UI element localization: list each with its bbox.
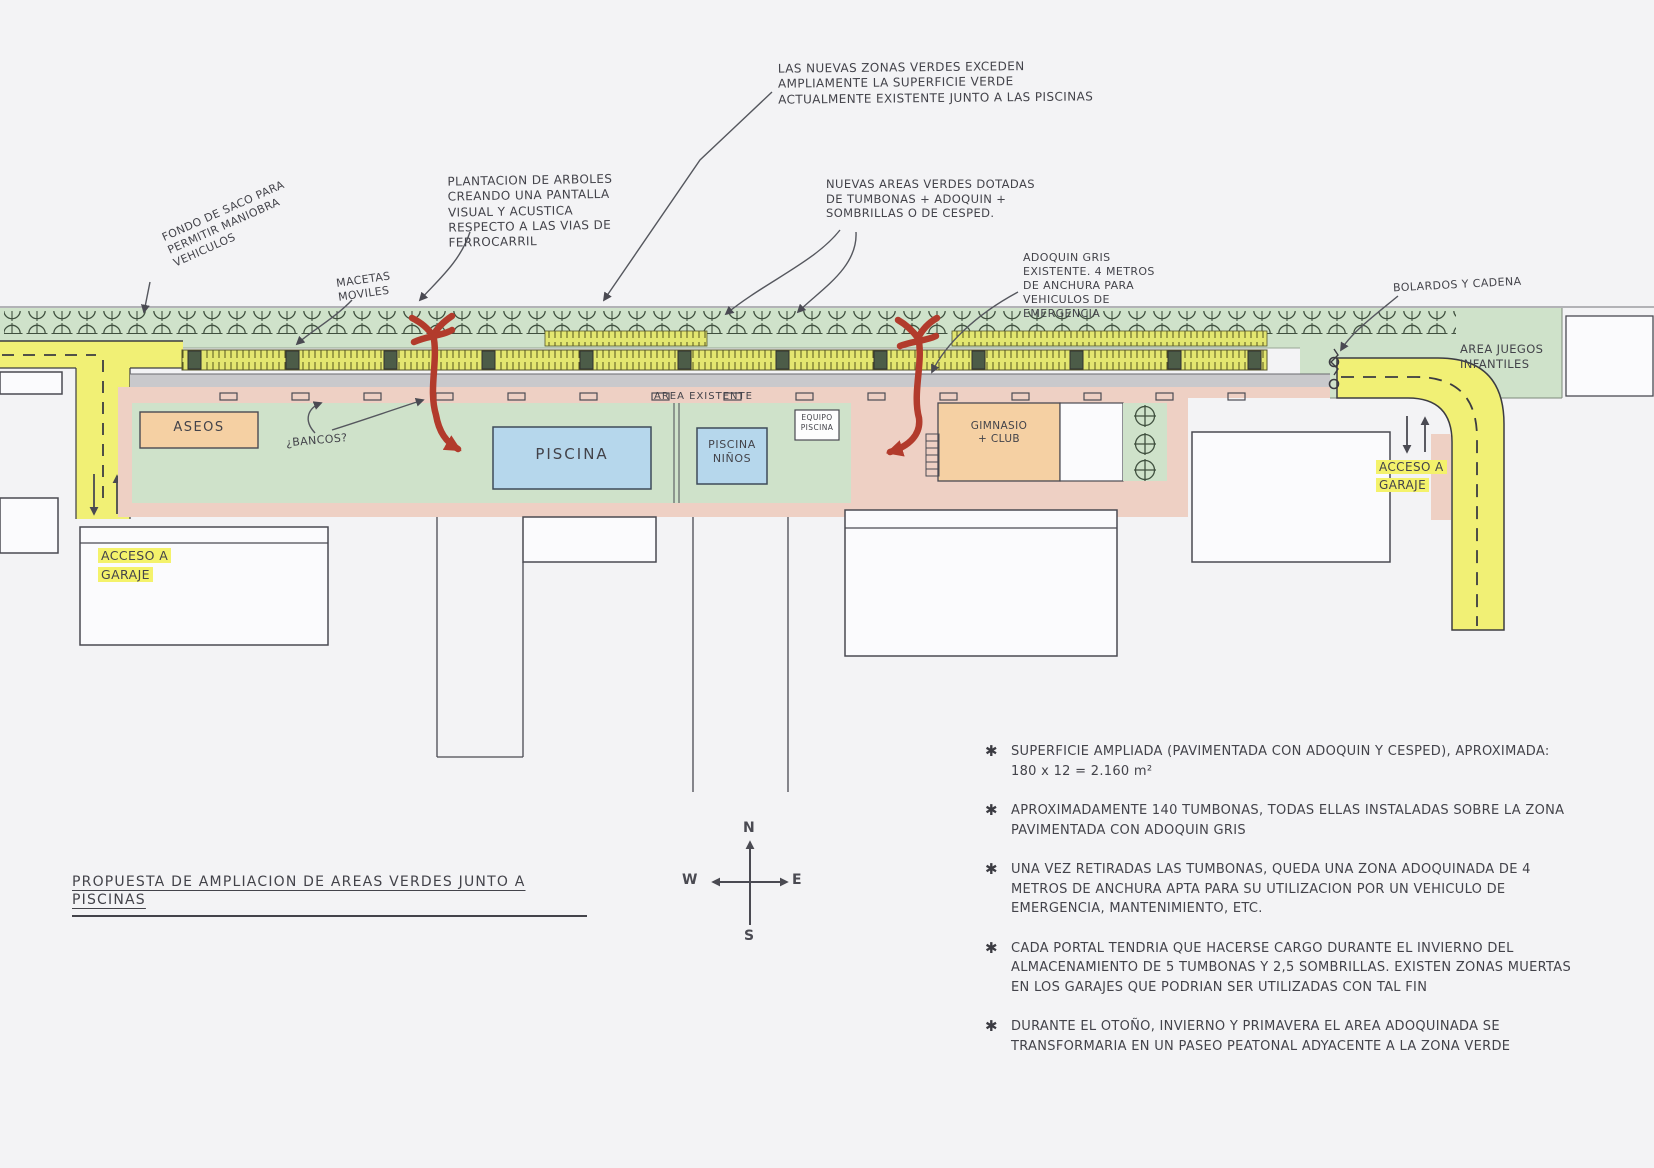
scanned-site-plan-page: LAS NUEVAS ZONAS VERDES EXCEDEN AMPLIAME… bbox=[0, 0, 1654, 1168]
label-existing-area: AREA EXISTENTE bbox=[654, 391, 784, 404]
label-acceso-garaje-left: ACCESO A GARAJE bbox=[98, 547, 210, 585]
compass-rose bbox=[713, 842, 787, 925]
gray-paving-strip bbox=[130, 374, 1330, 387]
note-item: ✱ APROXIMADAMENTE 140 TUMBONAS, TODAS EL… bbox=[985, 801, 1585, 840]
label-gimnasio-club: GIMNASIO + CLUB bbox=[967, 420, 1031, 447]
highlighted-text: ACCESO A GARAJE bbox=[1376, 460, 1447, 492]
note-item: ✱ DURANTE EL OTOÑO, INVIERNO Y PRIMAVERA… bbox=[985, 1017, 1585, 1056]
note-text: DURANTE EL OTOÑO, INVIERNO Y PRIMAVERA E… bbox=[1011, 1017, 1571, 1056]
asterisk-bullet-icon: ✱ bbox=[985, 939, 1011, 998]
asterisk-bullet-icon: ✱ bbox=[985, 801, 1011, 840]
annotation-new-green-zones: LAS NUEVAS ZONAS VERDES EXCEDEN AMPLIAME… bbox=[778, 58, 1100, 107]
page-title: PROPUESTA DE AMPLIACION DE AREAS VERDES … bbox=[72, 874, 587, 917]
note-item: ✱ CADA PORTAL TENDRIA QUE HACERSE CARGO … bbox=[985, 939, 1585, 998]
compass-north-label: N bbox=[743, 820, 755, 838]
note-text: CADA PORTAL TENDRIA QUE HACERSE CARGO DU… bbox=[1011, 939, 1571, 998]
asterisk-bullet-icon: ✱ bbox=[985, 860, 1011, 919]
label-acceso-garaje-right: ACCESO A GARAJE bbox=[1376, 458, 1468, 494]
compass-south-label: S bbox=[744, 928, 754, 946]
annotation-tree-planting: PLANTACION DE ARBOLES CREANDO UNA PANTAL… bbox=[447, 171, 633, 251]
label-aseos: ASEOS bbox=[140, 420, 258, 437]
note-item: ✱ UNA VEZ RETIRADAS LAS TUMBONAS, QUEDA … bbox=[985, 860, 1585, 919]
tree-row-icon bbox=[4, 311, 1456, 334]
compass-east-label: E bbox=[792, 872, 802, 890]
note-text: UNA VEZ RETIRADAS LAS TUMBONAS, QUEDA UN… bbox=[1011, 860, 1571, 919]
label-piscina: PISCINA bbox=[493, 445, 651, 464]
label-area-juegos-infantiles: AREA JUEGOS INFANTILES bbox=[1460, 342, 1545, 371]
note-text: SUPERFICIE AMPLIADA (PAVIMENTADA CON ADO… bbox=[1011, 742, 1571, 781]
compass-west-label: W bbox=[682, 872, 698, 890]
playground-area bbox=[1566, 316, 1653, 396]
notes-list: ✱ SUPERFICIE AMPLIADA (PAVIMENTADA CON A… bbox=[985, 742, 1585, 1076]
asterisk-bullet-icon: ✱ bbox=[985, 1017, 1011, 1056]
note-item: ✱ SUPERFICIE AMPLIADA (PAVIMENTADA CON A… bbox=[985, 742, 1585, 781]
note-text: APROXIMADAMENTE 140 TUMBONAS, TODAS ELLA… bbox=[1011, 801, 1571, 840]
label-piscina-ninos: PISCINA NIÑOS bbox=[697, 438, 767, 466]
asterisk-bullet-icon: ✱ bbox=[985, 742, 1011, 781]
annotation-gray-paving: ADOQUIN GRIS EXISTENTE. 4 METROS DE ANCH… bbox=[1023, 251, 1173, 321]
annotation-new-green-areas: NUEVAS AREAS VERDES DOTADAS DE TUMBONAS … bbox=[826, 177, 1044, 221]
highlighted-text: ACCESO A GARAJE bbox=[98, 548, 171, 582]
label-equipo-piscina: EQUIPO PISCINA bbox=[795, 413, 839, 433]
gym-section bbox=[926, 403, 1167, 481]
